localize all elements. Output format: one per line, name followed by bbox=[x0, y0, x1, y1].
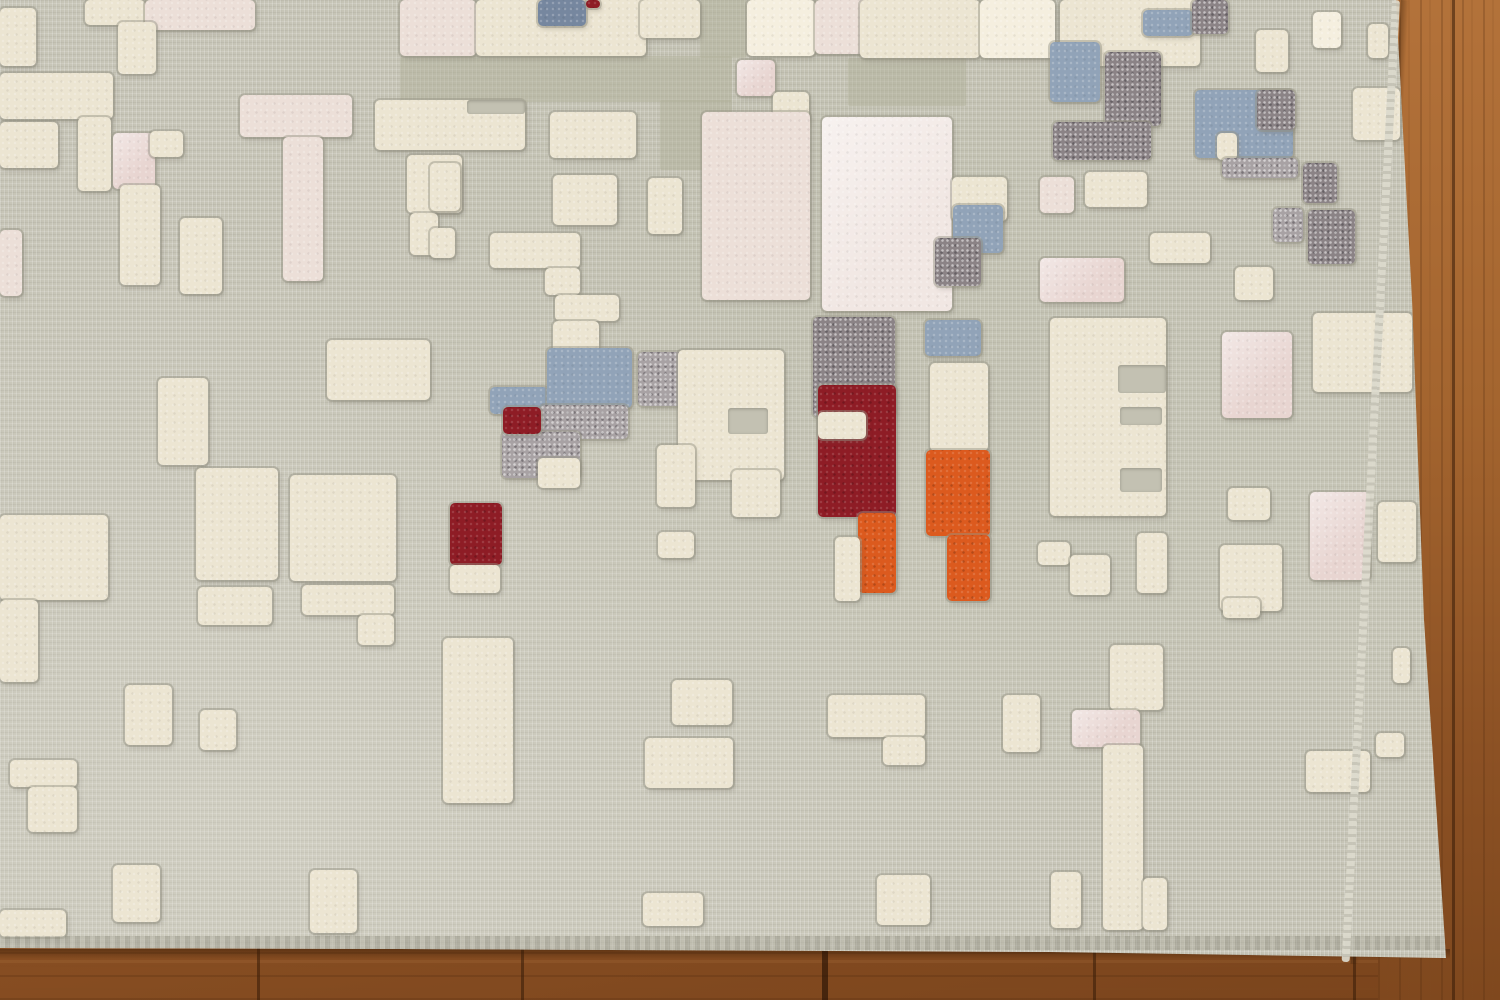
rug-block-iv bbox=[1051, 872, 1081, 928]
rug-block-iv bbox=[327, 340, 430, 400]
rug-block-cut bbox=[1118, 365, 1166, 393]
rug-block-iv bbox=[553, 175, 617, 225]
rug-block-iv bbox=[877, 875, 930, 925]
rug-block-iv bbox=[835, 537, 860, 601]
rug-block-bg bbox=[547, 348, 632, 408]
rug-block-rd bbox=[818, 385, 896, 517]
rug-blocks bbox=[0, 0, 1500, 1000]
rug-block-iv bbox=[0, 600, 38, 682]
rug-block-iv bbox=[545, 268, 580, 295]
rug-block-pk2 bbox=[737, 60, 775, 96]
rug-block-iv bbox=[1256, 30, 1288, 72]
rug-block-iv bbox=[657, 445, 695, 507]
rug-block-iv bbox=[358, 615, 394, 645]
area-rug bbox=[0, 0, 1500, 1000]
rug-block-or bbox=[858, 513, 896, 593]
floor-plank-seam bbox=[822, 948, 828, 1000]
rug-block-iv2 bbox=[980, 0, 1055, 58]
rug-block-cut bbox=[728, 408, 768, 434]
rug-block-iv bbox=[310, 870, 357, 933]
rug-block-iv bbox=[118, 22, 156, 74]
rug-block-iv bbox=[196, 468, 278, 580]
rug-block-iv bbox=[538, 458, 580, 488]
rug-block-bgd bbox=[538, 0, 586, 26]
rug-block-pkw bbox=[822, 117, 952, 311]
rug-block-rd bbox=[450, 503, 502, 565]
rug-block-iv bbox=[0, 8, 36, 66]
rug-block-iv bbox=[430, 228, 455, 258]
rug-block-pk bbox=[1040, 177, 1074, 213]
rug-block-pk2 bbox=[1040, 258, 1124, 302]
rug-block-cut bbox=[1120, 407, 1162, 425]
rug-block-iv bbox=[1217, 133, 1237, 160]
rug-block-pk2 bbox=[1310, 492, 1370, 580]
rug-block-iv bbox=[158, 378, 208, 465]
rug-block-iv bbox=[0, 910, 66, 937]
rug-block-shade bbox=[400, 56, 732, 102]
rug-block-iv bbox=[10, 760, 77, 787]
floor-plank-seam bbox=[521, 948, 524, 1000]
rug-block-rd bbox=[586, 0, 600, 8]
rug-block-iv bbox=[450, 565, 500, 593]
rug-block-pk2 bbox=[1222, 332, 1292, 418]
rug-block-iv bbox=[732, 470, 780, 517]
rug-block-iv bbox=[125, 685, 172, 745]
rug-block-shade bbox=[700, 0, 746, 58]
rug-block-pk bbox=[145, 0, 255, 30]
rug-block-pk bbox=[702, 112, 810, 300]
rug-block-iv bbox=[1368, 24, 1388, 58]
rug-block-bg bbox=[1143, 10, 1193, 36]
rug-block-iv bbox=[818, 412, 866, 439]
rug-block-pk2 bbox=[113, 133, 155, 189]
rug-block-iv bbox=[1085, 172, 1147, 207]
rug-block-iv bbox=[1103, 745, 1143, 930]
rug-block-pk bbox=[0, 230, 22, 296]
rug-block-iv bbox=[28, 787, 77, 832]
rug-block-iv bbox=[443, 638, 513, 803]
rug-block-iv bbox=[1223, 598, 1260, 618]
rug-block-iv bbox=[490, 233, 580, 268]
rug-block-iv bbox=[0, 73, 113, 119]
rug-block-iv bbox=[0, 122, 58, 168]
rug-block-iv bbox=[658, 532, 694, 558]
rug-block-cut bbox=[467, 100, 525, 114]
rug-block-iv bbox=[1378, 502, 1416, 562]
rug-block-iv bbox=[643, 893, 703, 926]
rug-block-iv bbox=[883, 737, 925, 765]
floor-plank-seam bbox=[257, 948, 260, 1000]
rug-block-iv bbox=[1038, 542, 1070, 565]
rug-block-iv bbox=[200, 710, 236, 750]
rug-block-dg bbox=[1308, 210, 1355, 264]
rug-block-iv bbox=[150, 131, 183, 157]
rug-block-iv bbox=[1003, 695, 1040, 752]
rug-block-dg2 bbox=[1273, 208, 1303, 242]
rug-block-or bbox=[926, 450, 990, 536]
rug-block-iv bbox=[860, 0, 980, 58]
rug-block-pk bbox=[283, 137, 323, 281]
rug-block-bg bbox=[925, 320, 981, 356]
rug-block-iv bbox=[1070, 555, 1110, 595]
rug-block-iv bbox=[930, 363, 988, 451]
rug-block-dg bbox=[1105, 52, 1161, 126]
rug-block-iv bbox=[0, 515, 108, 600]
rug-block-iv bbox=[430, 163, 460, 211]
rug-block-pk bbox=[240, 95, 352, 137]
rug-block-iv bbox=[198, 587, 272, 625]
scene bbox=[0, 0, 1500, 1000]
rug-block-iv bbox=[120, 185, 160, 285]
rug-block-iv bbox=[1376, 733, 1404, 757]
rug-block-iv bbox=[555, 295, 619, 321]
rug-block-iv bbox=[1137, 533, 1167, 593]
rug-block-dg bbox=[1303, 163, 1337, 203]
rug-block-rd bbox=[503, 407, 541, 434]
rug-block-iv bbox=[1313, 313, 1412, 392]
rug-block-iv bbox=[1306, 751, 1370, 792]
rug-block-iv bbox=[1150, 233, 1210, 263]
rug-block-dg bbox=[935, 238, 981, 286]
rug-bottom-binding bbox=[0, 936, 1450, 950]
rug-block-iv2 bbox=[747, 0, 815, 56]
rug-block-bg bbox=[1050, 42, 1100, 102]
rug-block-iv bbox=[180, 218, 222, 294]
floor-plank-seam bbox=[1093, 948, 1096, 1000]
rug-block-dg bbox=[1053, 122, 1151, 160]
floor-plank-seam bbox=[1452, 0, 1455, 1000]
rug-block-iv bbox=[828, 695, 925, 737]
rug-block-iv bbox=[1235, 267, 1273, 300]
rug-block-or bbox=[947, 535, 990, 601]
rug-block-iv bbox=[1110, 645, 1163, 710]
rug-block-pk bbox=[400, 0, 476, 56]
rug-block-iv bbox=[302, 585, 394, 615]
rug-block-dg2 bbox=[1222, 158, 1298, 178]
rug-block-iv bbox=[672, 680, 732, 725]
rug-block-iv bbox=[550, 112, 636, 158]
rug-block-iv bbox=[648, 178, 682, 234]
rug-block-iv bbox=[1393, 648, 1410, 683]
rug-block-dg bbox=[1257, 90, 1295, 130]
rug-block-pk2 bbox=[1072, 710, 1140, 747]
rug-block-cut bbox=[1120, 468, 1162, 492]
rug-block-iv bbox=[640, 0, 700, 38]
rug-block-iv bbox=[290, 475, 396, 581]
rug-block-iv bbox=[78, 117, 111, 191]
rug-block-iv bbox=[645, 738, 733, 788]
rug-block-iv bbox=[113, 865, 160, 922]
rug-block-iv bbox=[1143, 878, 1167, 930]
rug-block-dg bbox=[1192, 0, 1228, 34]
rug-block-iv2 bbox=[1313, 12, 1341, 48]
rug-block-shade bbox=[848, 58, 966, 106]
rug-block-iv bbox=[1228, 488, 1270, 520]
